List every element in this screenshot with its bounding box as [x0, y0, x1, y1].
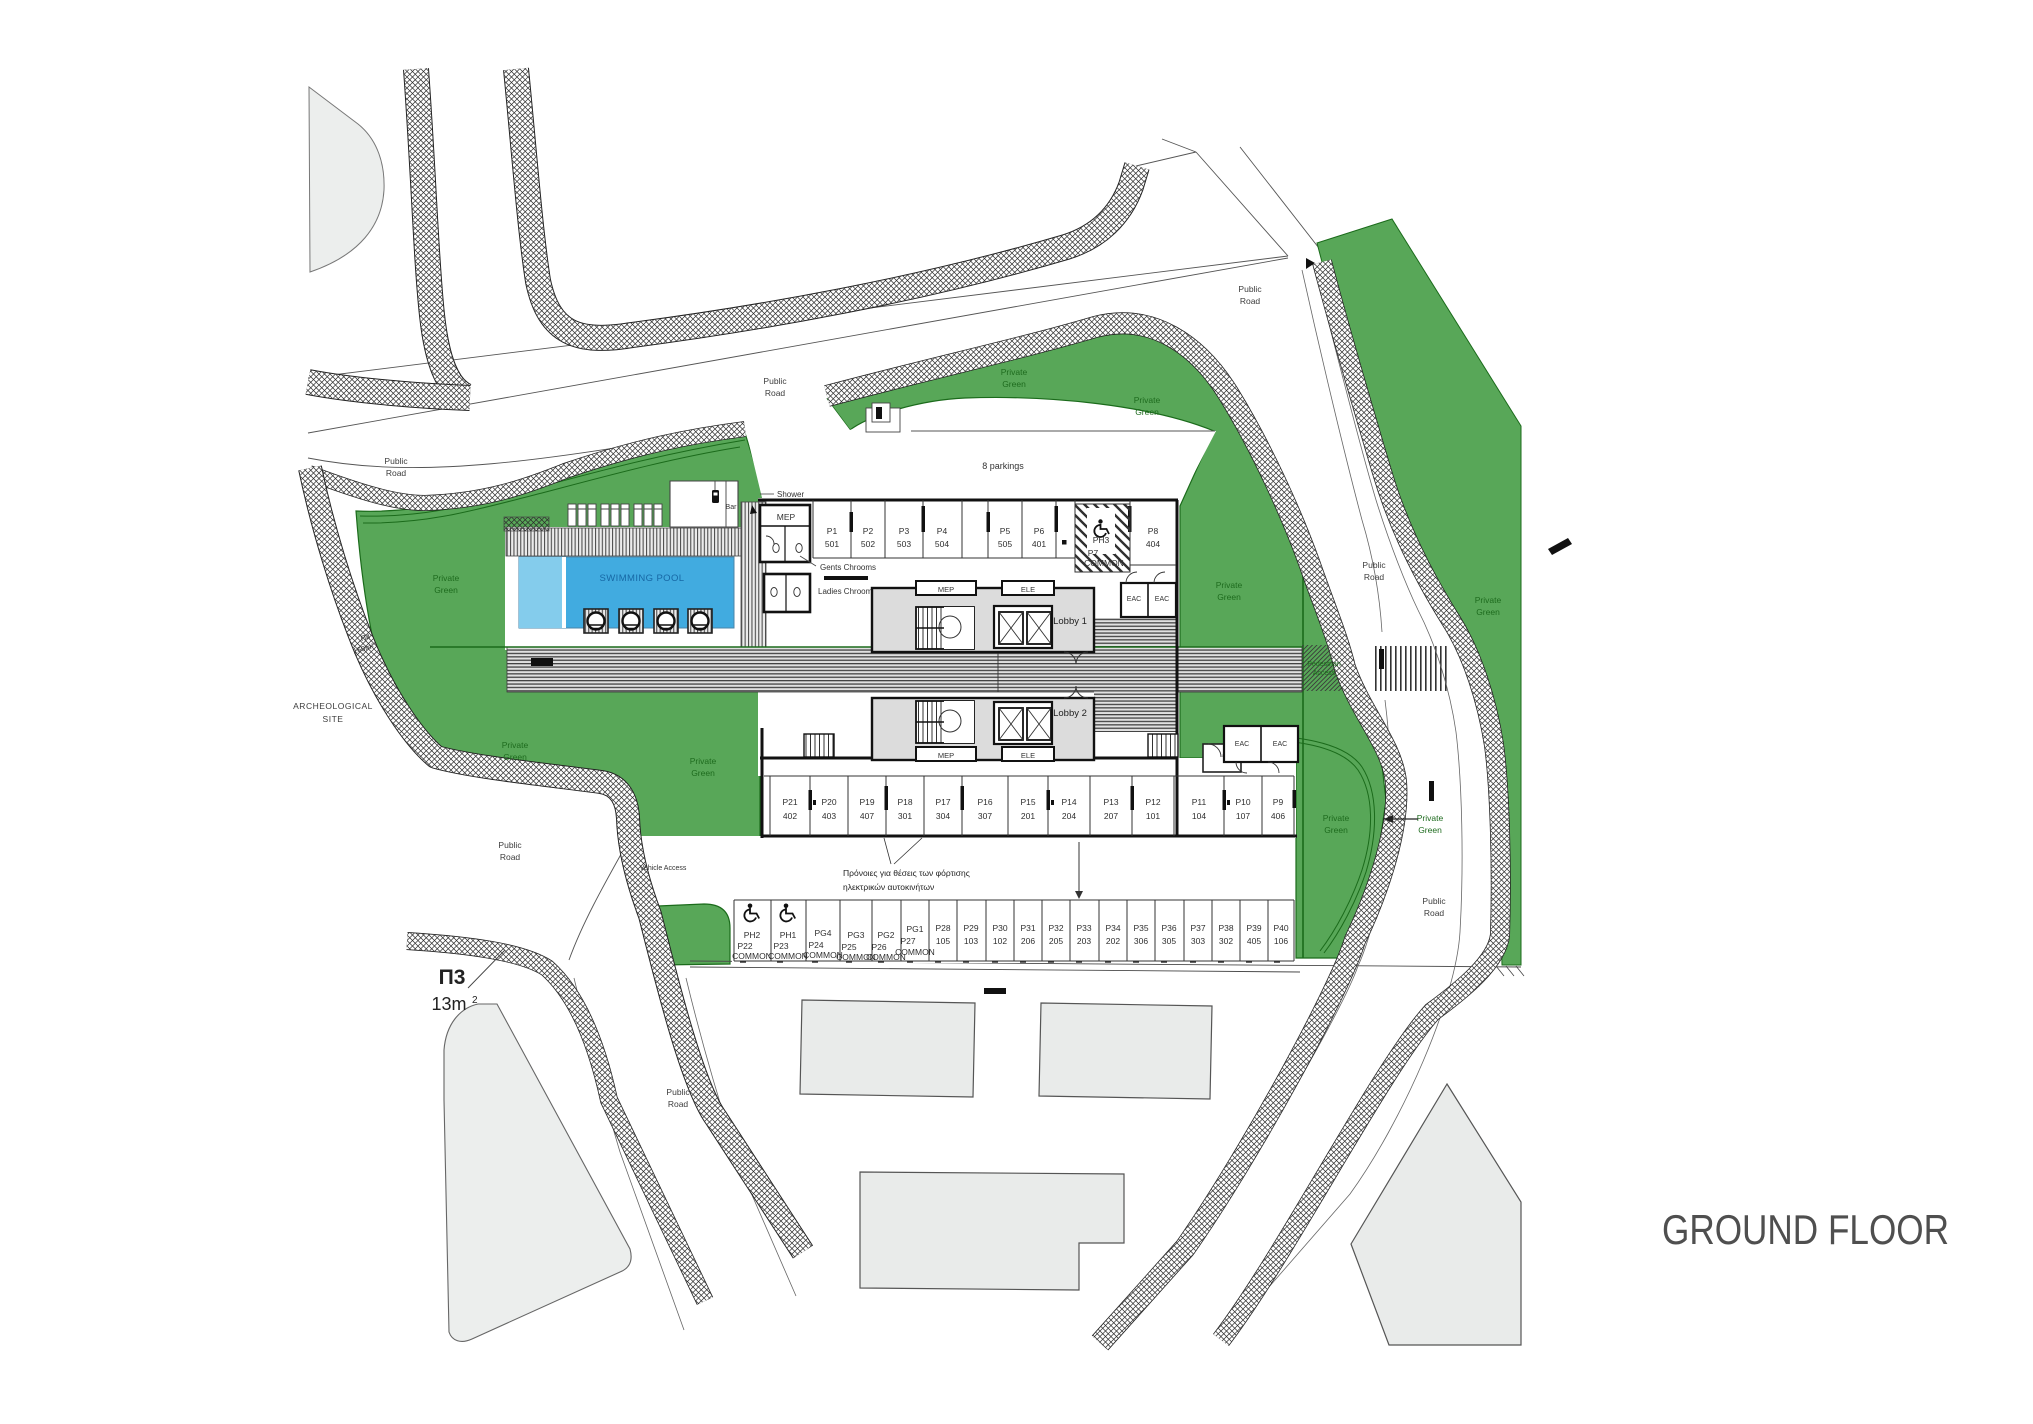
svg-text:P29: P29	[963, 923, 978, 933]
svg-text:COMMON: COMMON	[732, 951, 772, 961]
svg-text:Private: Private	[1134, 395, 1161, 405]
svg-text:PH1: PH1	[780, 930, 797, 940]
svg-text:Public: Public	[498, 840, 522, 850]
svg-text:P9: P9	[1273, 797, 1284, 807]
svg-text:P18: P18	[897, 797, 912, 807]
svg-text:COMMON: COMMON	[768, 951, 808, 961]
svg-text:ELE: ELE	[1021, 751, 1035, 760]
svg-text:503: 503	[897, 539, 911, 549]
svg-text:PG3: PG3	[847, 930, 864, 940]
svg-text:504: 504	[935, 539, 949, 549]
svg-text:P40: P40	[1273, 923, 1288, 933]
svg-text:P24: P24	[808, 940, 823, 950]
svg-text:P33: P33	[1076, 923, 1091, 933]
svg-text:ηλεκτρικών αυτοκινήτων: ηλεκτρικών αυτοκινήτων	[843, 882, 934, 892]
svg-text:505: 505	[998, 539, 1012, 549]
svg-text:MEP: MEP	[777, 512, 796, 522]
svg-text:PG2: PG2	[877, 930, 894, 940]
svg-text:SITE: SITE	[323, 714, 344, 724]
svg-text:Road: Road	[1364, 572, 1385, 582]
svg-text:COMMON: COMMON	[895, 947, 935, 957]
svg-text:P16: P16	[977, 797, 992, 807]
svg-text:Green: Green	[1002, 379, 1026, 389]
svg-text:Private: Private	[1323, 813, 1350, 823]
svg-text:301: 301	[898, 811, 912, 821]
svg-text:ARCHEOLOGICAL: ARCHEOLOGICAL	[293, 701, 373, 711]
svg-text:Road: Road	[1424, 908, 1445, 918]
svg-text:P15: P15	[1020, 797, 1035, 807]
svg-text:Lobby 1: Lobby 1	[1053, 616, 1087, 627]
svg-text:Pedestrian: Pedestrian	[1307, 661, 1341, 668]
svg-text:P30: P30	[992, 923, 1007, 933]
svg-text:Road: Road	[668, 1099, 689, 1109]
svg-text:2: 2	[472, 995, 478, 1006]
svg-text:P28: P28	[935, 923, 950, 933]
svg-text:P6: P6	[1034, 526, 1045, 536]
svg-text:107: 107	[1236, 811, 1250, 821]
svg-text:P36: P36	[1161, 923, 1176, 933]
svg-text:Public: Public	[1238, 284, 1262, 294]
svg-text:Green: Green	[434, 585, 458, 595]
svg-text:307: 307	[978, 811, 992, 821]
svg-text:EAC: EAC	[1127, 596, 1141, 603]
svg-text:406: 406	[1271, 811, 1285, 821]
svg-text:P2: P2	[863, 526, 874, 536]
svg-text:Vehicle Access: Vehicle Access	[640, 865, 687, 872]
svg-text:407: 407	[860, 811, 874, 821]
svg-text:8 parkings: 8 parkings	[982, 461, 1024, 471]
svg-text:Public: Public	[1362, 560, 1386, 570]
svg-text:P35: P35	[1133, 923, 1148, 933]
svg-text:13m: 13m	[431, 994, 466, 1014]
svg-text:304: 304	[936, 811, 950, 821]
svg-text:P34: P34	[1105, 923, 1120, 933]
svg-text:P8: P8	[1148, 526, 1159, 536]
svg-text:104: 104	[1192, 811, 1206, 821]
svg-text:Private: Private	[1417, 813, 1444, 823]
svg-text:EAC: EAC	[1235, 741, 1249, 748]
svg-text:Public: Public	[1422, 896, 1446, 906]
svg-text:P10: P10	[1235, 797, 1250, 807]
svg-text:P31: P31	[1020, 923, 1035, 933]
svg-text:P5: P5	[1000, 526, 1011, 536]
svg-text:GROUND FLOOR: GROUND FLOOR	[1662, 1206, 1949, 1253]
svg-text:Green: Green	[1324, 825, 1348, 835]
svg-text:Green: Green	[503, 752, 527, 762]
svg-text:P25: P25	[841, 942, 856, 952]
svg-text:Green: Green	[1135, 407, 1159, 417]
svg-text:PG4: PG4	[814, 928, 831, 938]
svg-text:MEP: MEP	[938, 585, 954, 594]
svg-text:Private: Private	[433, 573, 460, 583]
svg-text:PH3: PH3	[1093, 535, 1110, 545]
svg-text:P27: P27	[900, 936, 915, 946]
svg-text:502: 502	[861, 539, 875, 549]
svg-text:MEP: MEP	[938, 751, 954, 760]
svg-text:Private: Private	[1475, 595, 1502, 605]
svg-text:Road: Road	[1240, 296, 1261, 306]
svg-text:P22: P22	[737, 941, 752, 951]
svg-text:101: 101	[1146, 811, 1160, 821]
svg-text:404: 404	[1146, 539, 1160, 549]
svg-text:Green: Green	[691, 768, 715, 778]
svg-text:204: 204	[1062, 811, 1076, 821]
svg-text:403: 403	[822, 811, 836, 821]
svg-text:Private: Private	[502, 740, 529, 750]
svg-text:P3: P3	[899, 526, 910, 536]
svg-text:Lobby 2: Lobby 2	[1053, 708, 1087, 719]
svg-text:P12: P12	[1145, 797, 1160, 807]
svg-text:Shower: Shower	[777, 490, 804, 499]
svg-text:P4: P4	[937, 526, 948, 536]
svg-text:405: 405	[1247, 936, 1261, 946]
svg-text:Gents Chrooms: Gents Chrooms	[820, 563, 876, 572]
svg-text:PH2: PH2	[744, 930, 761, 940]
svg-text:Road: Road	[765, 388, 786, 398]
svg-text:Public: Public	[384, 456, 408, 466]
svg-text:Green: Green	[1217, 592, 1241, 602]
svg-text:P38: P38	[1218, 923, 1233, 933]
svg-text:Access: Access	[1313, 670, 1336, 677]
svg-text:Private: Private	[1001, 367, 1028, 377]
svg-text:P13: P13	[1103, 797, 1118, 807]
svg-text:PG1: PG1	[906, 924, 923, 934]
svg-text:P39: P39	[1246, 923, 1261, 933]
svg-text:P1: P1	[827, 526, 838, 536]
svg-text:Public: Public	[666, 1087, 690, 1097]
svg-text:106: 106	[1274, 936, 1288, 946]
svg-text:206: 206	[1021, 936, 1035, 946]
svg-text:Ladies Chrooms: Ladies Chrooms	[818, 587, 876, 596]
svg-text:Πρόνοιες για θέσεις των φόρτι: Πρόνοιες για θέσεις των φόρτισης	[843, 868, 970, 878]
svg-text:Private: Private	[690, 756, 717, 766]
svg-text:P21: P21	[782, 797, 797, 807]
svg-text:EAC: EAC	[1273, 741, 1287, 748]
svg-text:Bar: Bar	[726, 504, 738, 511]
svg-text:P32: P32	[1048, 923, 1063, 933]
svg-text:203: 203	[1077, 936, 1091, 946]
svg-text:201: 201	[1021, 811, 1035, 821]
svg-text:401: 401	[1032, 539, 1046, 549]
svg-text:SWIMMING POOL: SWIMMING POOL	[600, 573, 685, 584]
svg-text:305: 305	[1162, 936, 1176, 946]
svg-text:207: 207	[1104, 811, 1118, 821]
svg-text:205: 205	[1049, 936, 1063, 946]
svg-text:P14: P14	[1061, 797, 1076, 807]
svg-text:Public: Public	[763, 376, 787, 386]
svg-text:Road: Road	[386, 468, 407, 478]
svg-text:102: 102	[993, 936, 1007, 946]
svg-text:Π3: Π3	[439, 966, 466, 989]
svg-text:P7: P7	[1088, 548, 1099, 558]
svg-text:P37: P37	[1190, 923, 1205, 933]
svg-text:P19: P19	[859, 797, 874, 807]
svg-text:306: 306	[1134, 936, 1148, 946]
svg-text:P20: P20	[821, 797, 836, 807]
svg-text:Private: Private	[1216, 580, 1243, 590]
svg-text:P17: P17	[935, 797, 950, 807]
svg-text:303: 303	[1191, 936, 1205, 946]
svg-text:P23: P23	[773, 941, 788, 951]
svg-text:402: 402	[783, 811, 797, 821]
svg-text:103: 103	[964, 936, 978, 946]
svg-text:ELE: ELE	[1021, 585, 1035, 594]
svg-text:202: 202	[1106, 936, 1120, 946]
svg-text:Road: Road	[500, 852, 521, 862]
svg-text:302: 302	[1219, 936, 1233, 946]
svg-text:Green: Green	[1418, 825, 1442, 835]
svg-text:P26: P26	[871, 942, 886, 952]
svg-text:501: 501	[825, 539, 839, 549]
svg-text:Green: Green	[1476, 607, 1500, 617]
svg-text:P11: P11	[1192, 797, 1207, 807]
svg-text:105: 105	[936, 936, 950, 946]
svg-text:EAC: EAC	[1155, 596, 1169, 603]
svg-text:COMMON: COMMON	[1084, 558, 1124, 568]
